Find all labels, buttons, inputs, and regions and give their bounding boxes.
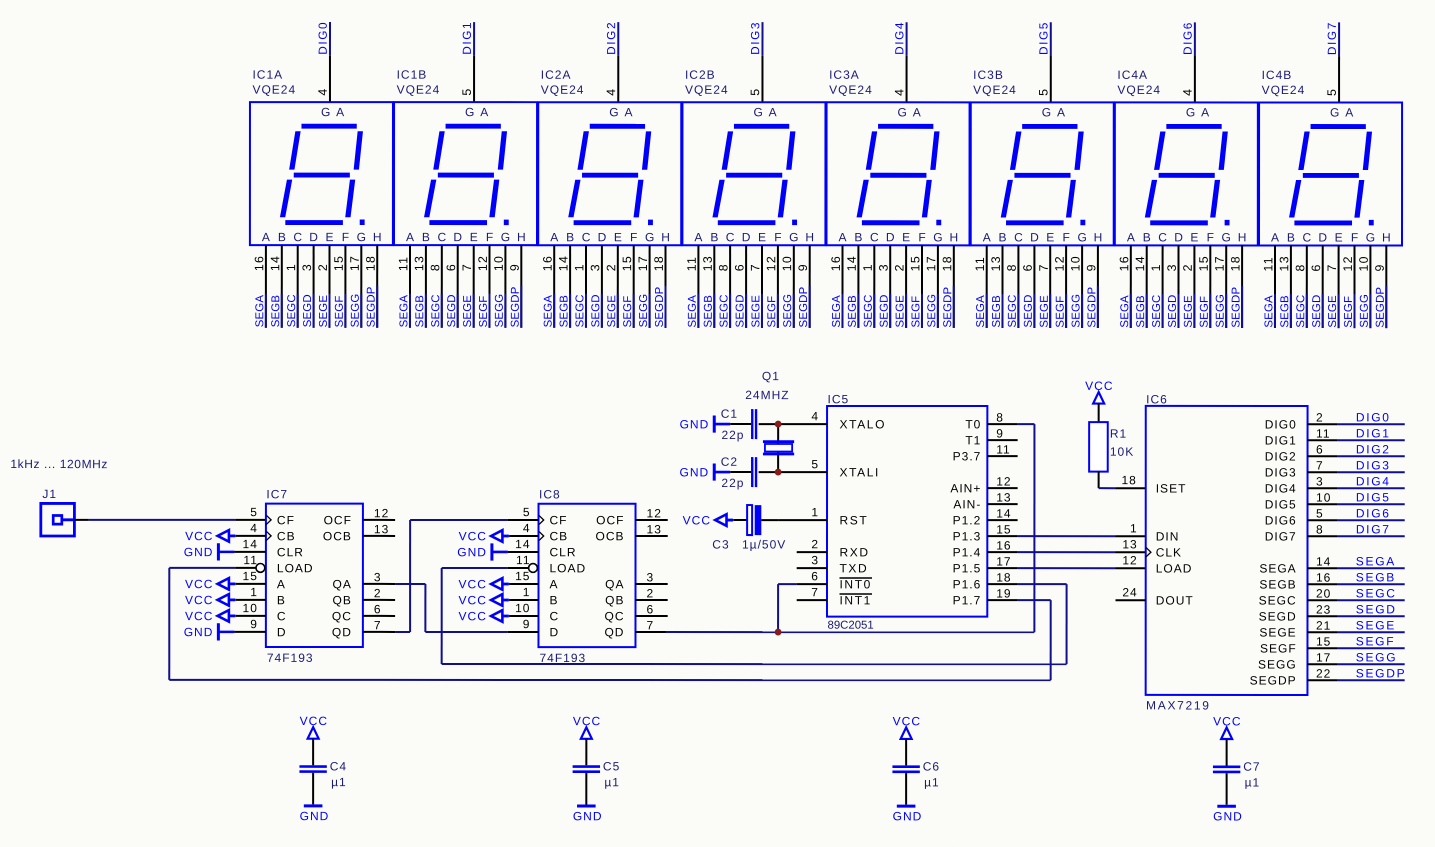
svg-text:16: 16 bbox=[252, 255, 266, 271]
svg-text:C1: C1 bbox=[721, 407, 738, 421]
svg-text:H: H bbox=[1382, 230, 1391, 244]
svg-text:F: F bbox=[486, 230, 493, 244]
svg-text:11: 11 bbox=[243, 553, 257, 567]
svg-text:15: 15 bbox=[332, 255, 346, 271]
svg-text:µ1: µ1 bbox=[331, 775, 347, 789]
svg-text:B: B bbox=[1287, 230, 1295, 244]
svg-text:SEGA: SEGA bbox=[1263, 295, 1275, 328]
svg-text:DIG5: DIG5 bbox=[1356, 490, 1391, 504]
svg-text:AIN+: AIN+ bbox=[950, 481, 981, 495]
svg-text:D: D bbox=[886, 230, 895, 244]
svg-text:SEGDP: SEGDP bbox=[1230, 287, 1242, 328]
svg-text:Q1: Q1 bbox=[762, 369, 780, 383]
svg-text:P1.6: P1.6 bbox=[953, 577, 982, 591]
svg-text:SEGDP: SEGDP bbox=[510, 286, 522, 327]
svg-text:C3: C3 bbox=[712, 537, 729, 551]
svg-text:5: 5 bbox=[1036, 88, 1050, 96]
svg-text:SEGB: SEGB bbox=[703, 295, 715, 327]
svg-text:1: 1 bbox=[572, 263, 586, 271]
svg-text:SEGC: SEGC bbox=[1356, 586, 1397, 600]
svg-text:LOAD: LOAD bbox=[549, 561, 586, 575]
svg-text:VCC: VCC bbox=[893, 714, 921, 728]
svg-text:B: B bbox=[710, 230, 718, 244]
svg-text:12: 12 bbox=[996, 474, 1011, 488]
svg-text:INT1: INT1 bbox=[839, 593, 871, 607]
svg-text:SEGD: SEGD bbox=[879, 294, 891, 327]
svg-text:14: 14 bbox=[1133, 255, 1147, 271]
svg-text:C: C bbox=[582, 230, 591, 244]
svg-text:OCF: OCF bbox=[324, 513, 352, 527]
svg-text:B: B bbox=[566, 230, 574, 244]
svg-text:A: A bbox=[277, 577, 286, 591]
svg-text:C: C bbox=[293, 230, 302, 244]
svg-text:SEGF: SEGF bbox=[766, 296, 778, 328]
svg-text:7: 7 bbox=[1037, 263, 1051, 271]
svg-text:15: 15 bbox=[620, 255, 634, 271]
svg-text:B: B bbox=[999, 230, 1007, 244]
svg-text:SEGF: SEGF bbox=[334, 295, 346, 327]
svg-text:22: 22 bbox=[1316, 667, 1331, 681]
svg-text:SEGF: SEGF bbox=[1260, 642, 1297, 656]
svg-text:G A: G A bbox=[1186, 105, 1211, 119]
svg-text:7: 7 bbox=[646, 618, 654, 632]
svg-text:A: A bbox=[406, 230, 414, 244]
svg-text:DIG1: DIG1 bbox=[460, 21, 474, 55]
svg-text:SEGE: SEGE bbox=[750, 295, 762, 328]
svg-text:IC2B: IC2B bbox=[685, 68, 716, 82]
svg-text:1µ/50V: 1µ/50V bbox=[742, 537, 786, 551]
svg-text:GND: GND bbox=[893, 809, 923, 823]
svg-text:DIG0: DIG0 bbox=[1356, 410, 1391, 424]
svg-text:OCB: OCB bbox=[323, 529, 352, 543]
svg-text:13: 13 bbox=[412, 255, 426, 271]
svg-text:SEGE: SEGE bbox=[1356, 618, 1396, 632]
svg-text:17: 17 bbox=[1213, 255, 1227, 271]
svg-text:SEGF: SEGF bbox=[478, 296, 490, 328]
svg-text:DIG7: DIG7 bbox=[1356, 522, 1391, 536]
svg-text:12: 12 bbox=[1341, 255, 1355, 271]
svg-text:OCB: OCB bbox=[595, 529, 624, 543]
svg-text:16: 16 bbox=[996, 538, 1011, 552]
svg-text:G A: G A bbox=[1042, 105, 1067, 119]
svg-text:SEGA: SEGA bbox=[398, 295, 410, 328]
svg-text:D: D bbox=[598, 230, 607, 244]
svg-text:C: C bbox=[437, 230, 446, 244]
svg-text:GND: GND bbox=[573, 809, 603, 823]
svg-text:D: D bbox=[1030, 230, 1039, 244]
svg-text:VQE24: VQE24 bbox=[973, 83, 1017, 97]
svg-text:18: 18 bbox=[996, 570, 1011, 584]
svg-text:SEGF: SEGF bbox=[1055, 296, 1067, 328]
svg-text:E: E bbox=[470, 230, 478, 244]
svg-text:5: 5 bbox=[811, 457, 819, 471]
svg-text:2: 2 bbox=[604, 263, 618, 271]
svg-text:7: 7 bbox=[1325, 263, 1339, 271]
svg-text:2: 2 bbox=[1181, 263, 1195, 271]
svg-text:11: 11 bbox=[516, 553, 530, 567]
svg-text:3: 3 bbox=[1316, 475, 1324, 489]
svg-text:CLK: CLK bbox=[1156, 546, 1182, 560]
svg-text:1: 1 bbox=[1149, 263, 1163, 271]
svg-text:2: 2 bbox=[316, 263, 330, 271]
svg-text:B: B bbox=[278, 230, 286, 244]
svg-text:OCF: OCF bbox=[596, 513, 624, 527]
svg-text:B: B bbox=[1143, 230, 1151, 244]
svg-text:SEGB: SEGB bbox=[558, 295, 570, 327]
svg-text:G: G bbox=[933, 230, 942, 244]
svg-text:22p: 22p bbox=[721, 428, 744, 442]
svg-text:14: 14 bbox=[515, 537, 530, 551]
svg-text:DIG4: DIG4 bbox=[1265, 482, 1297, 496]
svg-text:5: 5 bbox=[1325, 88, 1339, 96]
svg-text:1kHz ... 120MHz: 1kHz ... 120MHz bbox=[10, 457, 108, 471]
svg-text:16: 16 bbox=[541, 255, 555, 271]
svg-text:SEGB: SEGB bbox=[414, 295, 426, 327]
svg-text:G A: G A bbox=[321, 105, 346, 119]
svg-text:µ1: µ1 bbox=[604, 775, 620, 789]
svg-text:IC2A: IC2A bbox=[541, 68, 572, 82]
svg-text:VCC: VCC bbox=[185, 577, 213, 591]
svg-text:SEGF: SEGF bbox=[1356, 634, 1395, 648]
svg-text:H: H bbox=[517, 230, 526, 244]
svg-text:VCC: VCC bbox=[1213, 714, 1241, 728]
svg-text:13: 13 bbox=[996, 490, 1011, 504]
svg-text:7: 7 bbox=[460, 263, 474, 271]
svg-text:G A: G A bbox=[753, 105, 778, 119]
svg-text:J1: J1 bbox=[42, 487, 57, 501]
svg-text:E: E bbox=[902, 230, 910, 244]
svg-text:VCC: VCC bbox=[459, 577, 487, 591]
svg-text:5: 5 bbox=[1316, 507, 1324, 521]
svg-text:GND: GND bbox=[680, 465, 710, 479]
svg-text:T0: T0 bbox=[965, 417, 981, 431]
svg-text:VCC: VCC bbox=[459, 529, 487, 543]
svg-text:14: 14 bbox=[243, 537, 258, 551]
svg-text:CB: CB bbox=[277, 529, 296, 543]
svg-text:QA: QA bbox=[333, 577, 352, 591]
svg-text:SEGG: SEGG bbox=[1258, 658, 1297, 672]
svg-text:IC5: IC5 bbox=[828, 392, 850, 406]
svg-text:D: D bbox=[549, 625, 559, 639]
svg-text:11: 11 bbox=[973, 256, 987, 271]
svg-text:E: E bbox=[1046, 230, 1054, 244]
svg-text:4: 4 bbox=[523, 521, 531, 535]
svg-text:DIG6: DIG6 bbox=[1356, 506, 1391, 520]
svg-text:AIN-: AIN- bbox=[953, 497, 981, 511]
svg-text:F: F bbox=[774, 230, 781, 244]
svg-text:µ1: µ1 bbox=[924, 775, 940, 789]
svg-text:SEGC: SEGC bbox=[1007, 294, 1019, 327]
svg-text:C: C bbox=[277, 609, 287, 623]
svg-text:SEGD: SEGD bbox=[1311, 295, 1323, 328]
svg-text:6: 6 bbox=[1309, 263, 1323, 271]
svg-text:8: 8 bbox=[717, 263, 731, 271]
svg-text:18: 18 bbox=[940, 255, 954, 271]
svg-text:SEGB: SEGB bbox=[847, 295, 859, 327]
svg-text:11: 11 bbox=[1316, 427, 1330, 441]
svg-text:SEGDP: SEGDP bbox=[1375, 287, 1387, 328]
svg-text:2: 2 bbox=[811, 537, 819, 551]
svg-text:F: F bbox=[342, 230, 349, 244]
svg-text:SEGF: SEGF bbox=[1343, 296, 1355, 328]
svg-text:G A: G A bbox=[465, 105, 490, 119]
svg-text:4: 4 bbox=[1181, 88, 1195, 96]
svg-text:A: A bbox=[262, 230, 270, 244]
svg-text:9: 9 bbox=[250, 617, 258, 631]
svg-text:DIG7: DIG7 bbox=[1265, 530, 1297, 544]
svg-text:9: 9 bbox=[508, 263, 522, 271]
svg-text:QB: QB bbox=[333, 593, 352, 607]
svg-text:TXD: TXD bbox=[839, 561, 868, 575]
svg-text:LOAD: LOAD bbox=[277, 561, 314, 575]
svg-text:SEGD: SEGD bbox=[734, 294, 746, 327]
svg-text:VCC: VCC bbox=[185, 593, 213, 607]
svg-text:GND: GND bbox=[184, 545, 214, 559]
svg-text:C: C bbox=[1302, 230, 1311, 244]
svg-text:SEGG: SEGG bbox=[782, 294, 794, 328]
svg-text:VCC: VCC bbox=[573, 714, 601, 728]
svg-text:DIG6: DIG6 bbox=[1181, 21, 1195, 55]
svg-text:VQE24: VQE24 bbox=[1262, 83, 1306, 97]
svg-text:A: A bbox=[1271, 230, 1279, 244]
svg-text:6: 6 bbox=[374, 602, 382, 616]
svg-text:A: A bbox=[1127, 230, 1135, 244]
svg-text:ISET: ISET bbox=[1156, 482, 1187, 496]
svg-text:G: G bbox=[357, 230, 366, 244]
svg-text:SEGD: SEGD bbox=[1023, 294, 1035, 327]
svg-text:SEGDP: SEGDP bbox=[1086, 287, 1098, 328]
svg-text:12: 12 bbox=[374, 506, 389, 520]
svg-text:SEGE: SEGE bbox=[1183, 295, 1195, 328]
svg-text:2: 2 bbox=[646, 586, 654, 600]
svg-text:10: 10 bbox=[515, 601, 530, 615]
svg-text:DIG5: DIG5 bbox=[1265, 498, 1297, 512]
svg-text:DIN: DIN bbox=[1156, 530, 1180, 544]
svg-text:IC4B: IC4B bbox=[1262, 68, 1293, 82]
svg-text:A: A bbox=[549, 577, 558, 591]
svg-text:13: 13 bbox=[1122, 537, 1137, 551]
svg-text:SEGD: SEGD bbox=[1259, 610, 1297, 624]
svg-text:9: 9 bbox=[996, 426, 1004, 440]
svg-text:13: 13 bbox=[701, 255, 715, 271]
svg-text:G: G bbox=[789, 230, 798, 244]
svg-text:VQE24: VQE24 bbox=[1117, 83, 1161, 97]
svg-text:H: H bbox=[805, 230, 814, 244]
svg-text:SEGC: SEGC bbox=[430, 294, 442, 327]
svg-text:24MHZ: 24MHZ bbox=[745, 388, 789, 402]
svg-text:VQE24: VQE24 bbox=[685, 83, 729, 97]
svg-text:E: E bbox=[1335, 230, 1343, 244]
svg-text:7: 7 bbox=[1316, 459, 1324, 473]
svg-text:9: 9 bbox=[523, 617, 531, 631]
svg-text:3: 3 bbox=[811, 553, 819, 567]
svg-text:SEGC: SEGC bbox=[1295, 295, 1307, 328]
svg-text:DIG2: DIG2 bbox=[1265, 450, 1297, 464]
svg-text:17: 17 bbox=[348, 255, 362, 271]
svg-text:A: A bbox=[550, 230, 558, 244]
svg-text:QC: QC bbox=[604, 609, 624, 623]
svg-text:5: 5 bbox=[250, 505, 258, 519]
svg-text:5: 5 bbox=[523, 505, 531, 519]
svg-text:10K: 10K bbox=[1110, 445, 1134, 459]
svg-text:CB: CB bbox=[550, 529, 569, 543]
svg-text:IC8: IC8 bbox=[539, 487, 561, 501]
svg-text:IC1B: IC1B bbox=[397, 68, 428, 82]
svg-text:CF: CF bbox=[277, 513, 295, 527]
svg-text:18: 18 bbox=[364, 255, 378, 271]
svg-text:B: B bbox=[277, 593, 286, 607]
svg-text:IC7: IC7 bbox=[266, 487, 288, 501]
svg-text:10: 10 bbox=[1357, 255, 1371, 271]
svg-text:µ1: µ1 bbox=[1245, 775, 1261, 789]
svg-text:INT0: INT0 bbox=[839, 577, 871, 591]
svg-text:SEGA: SEGA bbox=[1259, 562, 1296, 576]
svg-text:16: 16 bbox=[1316, 571, 1331, 585]
svg-text:17: 17 bbox=[1316, 651, 1331, 665]
svg-text:3: 3 bbox=[1165, 263, 1179, 271]
svg-text:11: 11 bbox=[996, 442, 1010, 456]
svg-text:SEGA: SEGA bbox=[543, 295, 555, 328]
svg-text:SEGF: SEGF bbox=[622, 296, 634, 328]
svg-text:13: 13 bbox=[647, 522, 662, 536]
svg-text:E: E bbox=[326, 230, 334, 244]
svg-text:SEGDP: SEGDP bbox=[942, 287, 954, 328]
svg-text:VCC: VCC bbox=[185, 529, 213, 543]
svg-text:E: E bbox=[758, 230, 766, 244]
svg-text:4: 4 bbox=[250, 521, 258, 535]
svg-text:RXD: RXD bbox=[840, 545, 870, 559]
svg-text:23: 23 bbox=[1316, 603, 1331, 617]
svg-text:4: 4 bbox=[811, 409, 819, 423]
svg-text:SEGG: SEGG bbox=[1356, 650, 1397, 664]
svg-text:24: 24 bbox=[1122, 585, 1137, 599]
svg-text:CF: CF bbox=[550, 513, 568, 527]
svg-text:R1: R1 bbox=[1110, 427, 1127, 441]
svg-text:11: 11 bbox=[685, 256, 699, 271]
svg-text:E: E bbox=[614, 230, 622, 244]
svg-text:13: 13 bbox=[1277, 255, 1291, 271]
svg-text:A: A bbox=[694, 230, 702, 244]
svg-text:H: H bbox=[1238, 230, 1247, 244]
svg-text:74F193: 74F193 bbox=[539, 651, 586, 665]
svg-text:SEGE: SEGE bbox=[318, 295, 330, 328]
svg-text:9: 9 bbox=[1084, 263, 1098, 271]
svg-text:13: 13 bbox=[374, 522, 389, 536]
svg-text:C: C bbox=[870, 230, 879, 244]
svg-text:SEGB: SEGB bbox=[1135, 295, 1147, 327]
svg-text:4: 4 bbox=[892, 88, 906, 96]
svg-text:17: 17 bbox=[636, 255, 650, 271]
svg-text:DIG2: DIG2 bbox=[1356, 442, 1391, 456]
svg-text:SEGA: SEGA bbox=[254, 295, 266, 328]
svg-text:IC1A: IC1A bbox=[252, 68, 283, 82]
svg-text:SEGG: SEGG bbox=[350, 294, 362, 328]
svg-text:GND: GND bbox=[300, 809, 330, 823]
svg-text:15: 15 bbox=[1197, 255, 1211, 271]
svg-text:6: 6 bbox=[646, 602, 654, 616]
svg-text:20: 20 bbox=[1316, 587, 1331, 601]
svg-text:SEGG: SEGG bbox=[1215, 294, 1227, 328]
svg-text:E: E bbox=[1190, 230, 1198, 244]
svg-text:14: 14 bbox=[1316, 555, 1331, 569]
svg-text:14: 14 bbox=[845, 255, 859, 271]
svg-text:SEGDP: SEGDP bbox=[654, 287, 666, 328]
svg-text:8: 8 bbox=[1293, 263, 1307, 271]
svg-text:A: A bbox=[839, 230, 847, 244]
svg-text:3: 3 bbox=[646, 570, 654, 584]
svg-text:21: 21 bbox=[1316, 619, 1331, 633]
svg-text:VCC: VCC bbox=[683, 513, 711, 527]
svg-text:SEGC: SEGC bbox=[286, 294, 298, 327]
svg-text:VCC: VCC bbox=[459, 609, 487, 623]
svg-text:LOAD: LOAD bbox=[1156, 562, 1193, 576]
svg-text:C: C bbox=[1014, 230, 1023, 244]
svg-text:12: 12 bbox=[1122, 553, 1137, 567]
svg-text:SEGD: SEGD bbox=[1167, 295, 1179, 328]
svg-text:3: 3 bbox=[588, 263, 602, 271]
svg-text:6: 6 bbox=[1021, 263, 1035, 271]
svg-text:SEGC: SEGC bbox=[718, 294, 730, 327]
svg-text:22p: 22p bbox=[721, 476, 744, 490]
svg-text:QC: QC bbox=[332, 609, 352, 623]
svg-text:C6: C6 bbox=[923, 760, 940, 774]
svg-text:VCC: VCC bbox=[1085, 379, 1113, 393]
svg-text:18: 18 bbox=[1121, 473, 1136, 487]
svg-text:SEGA: SEGA bbox=[1119, 295, 1131, 328]
svg-text:SEGF: SEGF bbox=[1199, 296, 1211, 328]
svg-text:14: 14 bbox=[557, 255, 571, 271]
svg-text:DIG0: DIG0 bbox=[1265, 418, 1297, 432]
svg-text:SEGG: SEGG bbox=[1070, 294, 1082, 328]
svg-text:1: 1 bbox=[811, 505, 819, 519]
svg-text:9: 9 bbox=[796, 263, 810, 271]
svg-text:B: B bbox=[422, 230, 430, 244]
svg-text:B: B bbox=[549, 593, 558, 607]
svg-text:8: 8 bbox=[996, 410, 1004, 424]
svg-text:H: H bbox=[373, 230, 382, 244]
svg-text:1: 1 bbox=[523, 585, 531, 599]
svg-text:F: F bbox=[1207, 230, 1214, 244]
svg-text:DIG7: DIG7 bbox=[1325, 21, 1339, 55]
svg-text:VQE24: VQE24 bbox=[541, 83, 585, 97]
svg-text:G A: G A bbox=[898, 105, 923, 119]
svg-text:GND: GND bbox=[457, 545, 487, 559]
svg-text:QA: QA bbox=[605, 577, 624, 591]
svg-text:F: F bbox=[918, 230, 925, 244]
svg-text:SEGE: SEGE bbox=[1259, 626, 1296, 640]
svg-text:4: 4 bbox=[604, 88, 618, 96]
svg-text:RST: RST bbox=[840, 513, 869, 527]
svg-text:18: 18 bbox=[1229, 255, 1243, 271]
svg-text:6: 6 bbox=[444, 263, 458, 271]
svg-text:DIG3: DIG3 bbox=[1356, 458, 1391, 472]
svg-text:VQE24: VQE24 bbox=[397, 83, 441, 97]
svg-text:G A: G A bbox=[1330, 105, 1355, 119]
svg-text:IC3A: IC3A bbox=[829, 68, 860, 82]
svg-text:1: 1 bbox=[284, 263, 298, 271]
svg-text:3: 3 bbox=[374, 570, 382, 584]
svg-text:SEGC: SEGC bbox=[1151, 295, 1163, 328]
svg-text:D: D bbox=[1318, 230, 1327, 244]
svg-text:DIG4: DIG4 bbox=[892, 21, 906, 55]
svg-text:SEGB: SEGB bbox=[270, 295, 282, 327]
svg-text:C: C bbox=[726, 230, 735, 244]
svg-text:DIG0: DIG0 bbox=[316, 21, 330, 55]
svg-text:15: 15 bbox=[996, 522, 1011, 536]
svg-text:3: 3 bbox=[877, 263, 891, 271]
svg-text:SEGB: SEGB bbox=[1279, 295, 1291, 327]
svg-text:G: G bbox=[645, 230, 654, 244]
